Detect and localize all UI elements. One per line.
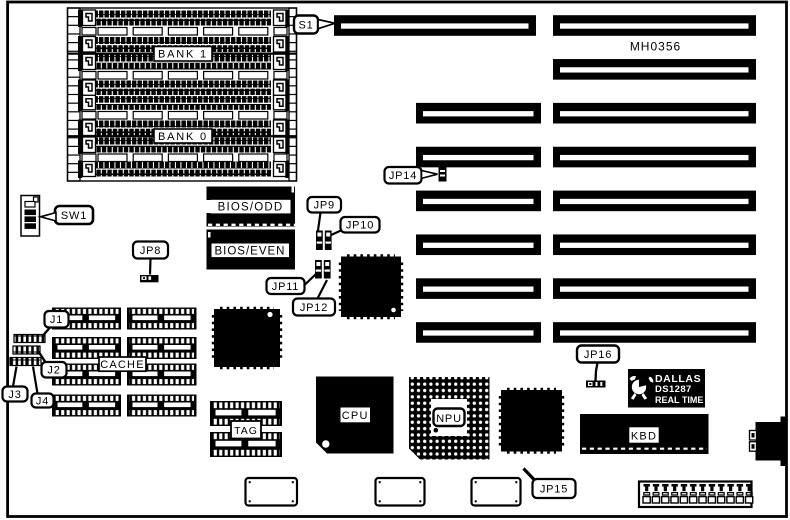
svg-text:J3: J3: [8, 389, 21, 401]
svg-text:BANK 0: BANK 0: [158, 131, 208, 143]
svg-text:JP12: JP12: [300, 302, 328, 314]
svg-text:JP14: JP14: [389, 170, 417, 182]
svg-text:JP10: JP10: [346, 220, 374, 232]
svg-text:J4: J4: [36, 395, 49, 407]
svg-text:MH0356: MH0356: [630, 39, 681, 53]
svg-text:KBD: KBD: [631, 431, 657, 443]
svg-text:CPU: CPU: [342, 410, 369, 422]
svg-text:JP11: JP11: [272, 281, 299, 293]
svg-text:BIOS/EVEN: BIOS/EVEN: [215, 245, 286, 257]
svg-text:SW1: SW1: [61, 210, 87, 222]
svg-text:BIOS/ODD: BIOS/ODD: [218, 202, 284, 214]
svg-text:TAG: TAG: [234, 425, 258, 437]
svg-text:REAL TIME: REAL TIME: [655, 395, 703, 405]
svg-text:CACHE: CACHE: [100, 359, 145, 371]
svg-text:S1: S1: [298, 19, 313, 31]
svg-text:J1: J1: [50, 314, 63, 326]
svg-text:BANK 1: BANK 1: [158, 49, 208, 61]
svg-text:JP16: JP16: [584, 349, 612, 361]
svg-text:DS1287: DS1287: [655, 384, 692, 395]
svg-text:NPU: NPU: [436, 413, 462, 425]
svg-text:JP9: JP9: [314, 200, 335, 212]
svg-text:JP15: JP15: [540, 483, 568, 495]
svg-text:JP8: JP8: [140, 245, 161, 257]
svg-text:DALLAS: DALLAS: [655, 373, 701, 385]
svg-text:J2: J2: [47, 365, 60, 377]
